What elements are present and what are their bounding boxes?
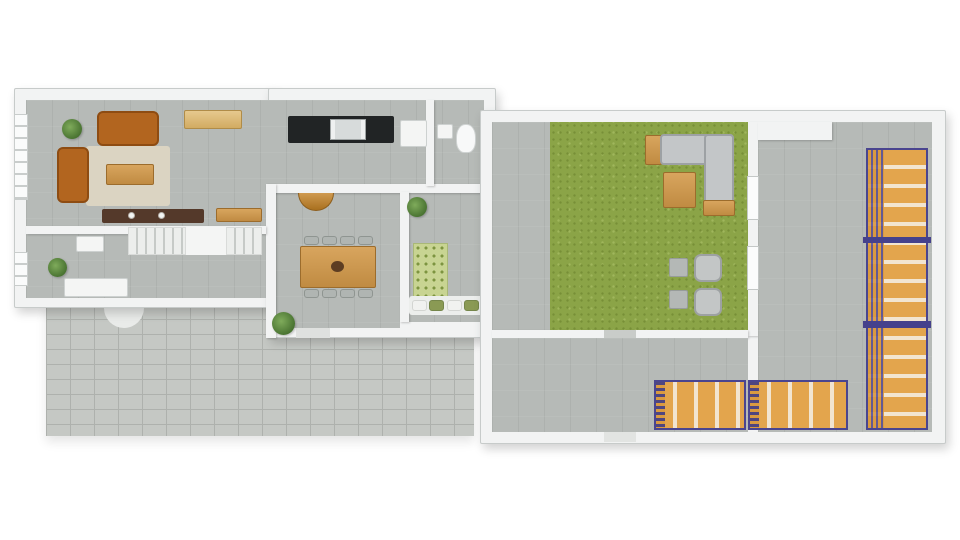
door-green-1: [747, 176, 759, 220]
floorplan-image: [0, 0, 960, 540]
dining-chair-8: [358, 289, 373, 298]
kitchen-sink: [330, 119, 366, 140]
plant-living: [62, 119, 82, 139]
dining-chair-1: [304, 236, 319, 245]
bath-sink: [437, 124, 453, 139]
plant-bedroom: [407, 197, 427, 217]
side-table-2: [669, 290, 688, 309]
vase-1: [128, 212, 135, 219]
dining-chair-2: [322, 236, 337, 245]
rack-floor-1: [654, 380, 746, 430]
coffee-table: [106, 164, 154, 185]
sofa-left: [57, 147, 89, 203]
pillow-4: [464, 300, 479, 311]
armchair-1: [694, 254, 722, 282]
floor-entry-strip: [492, 122, 550, 336]
rack-wall: [866, 148, 928, 430]
beam-top-warehouse: [758, 122, 832, 140]
threshold-bottom: [604, 432, 636, 442]
staircase-landing: [186, 227, 226, 255]
dining-chair-6: [322, 289, 337, 298]
door-green-2: [747, 246, 759, 290]
toilet: [456, 124, 476, 153]
window-living: [14, 114, 28, 200]
plant-patio: [272, 312, 295, 335]
staircase-winder: [128, 227, 186, 255]
threshold-green: [604, 330, 636, 338]
sideboard-dark: [102, 209, 204, 223]
rack-floor-2: [748, 380, 848, 430]
staircase-straight: [226, 227, 262, 255]
plant-hall: [48, 258, 67, 277]
vase-2: [158, 212, 165, 219]
pillow-3: [447, 300, 462, 311]
door-dining-patio: [296, 328, 330, 338]
fridge: [400, 120, 427, 147]
pillow-1: [412, 300, 427, 311]
coffee-table-green: [663, 172, 696, 208]
pillow-2: [429, 300, 444, 311]
dining-centerpiece: [331, 261, 344, 272]
dining-chair-3: [340, 236, 355, 245]
window-hall: [14, 252, 28, 286]
armchair-2: [694, 288, 722, 316]
dining-chair-5: [304, 289, 319, 298]
wall-kitchen-bath: [426, 100, 434, 186]
dining-chair-4: [358, 236, 373, 245]
hall-cabinet: [76, 236, 104, 252]
dining-chair-7: [340, 289, 355, 298]
floorplan-stage: [0, 0, 960, 540]
rug-bedroom: [413, 243, 448, 297]
side-table-1: [669, 258, 688, 277]
rack-divider-1: [863, 237, 931, 243]
rack-divider-2: [863, 321, 931, 328]
pallet-under-sofa: [703, 200, 735, 216]
sideboard-light: [184, 110, 242, 129]
hall-desk: [64, 278, 128, 297]
wall-green-right: [748, 122, 758, 336]
wall-kitchen-dining: [266, 184, 484, 193]
sofa-top: [97, 111, 159, 146]
console-wood: [216, 208, 262, 222]
